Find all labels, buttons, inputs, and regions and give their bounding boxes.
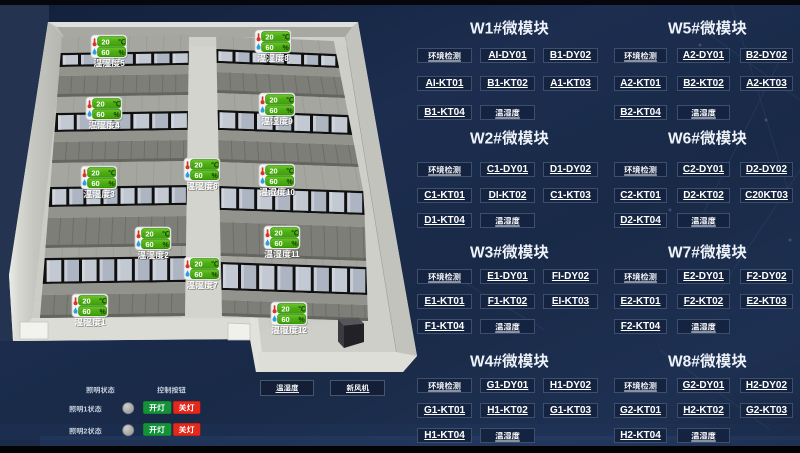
- svg-text:W7#: W7#: [668, 244, 700, 261]
- svg-text:%: %: [286, 108, 293, 115]
- svg-text:20: 20: [194, 160, 202, 169]
- svg-text:20: 20: [91, 168, 99, 177]
- svg-text:20: 20: [101, 37, 109, 46]
- svg-text:W6#: W6#: [668, 131, 700, 148]
- svg-text:1: 1: [83, 404, 87, 413]
- svg-text:3: 3: [110, 190, 115, 199]
- svg-text:6: 6: [213, 182, 218, 191]
- svg-text:%: %: [286, 179, 293, 186]
- svg-text:%: %: [282, 45, 289, 52]
- svg-text:20: 20: [269, 95, 277, 104]
- svg-text:12: 12: [298, 326, 307, 335]
- svg-text:60: 60: [96, 110, 104, 119]
- svg-text:11: 11: [291, 250, 300, 259]
- svg-text:W3#: W3#: [470, 244, 502, 261]
- svg-text:60: 60: [82, 307, 90, 316]
- svg-text:60: 60: [269, 106, 277, 115]
- svg-text:%: %: [118, 50, 125, 57]
- svg-text:60: 60: [281, 315, 289, 324]
- svg-text:%: %: [211, 173, 218, 180]
- svg-text:20: 20: [269, 166, 277, 175]
- svg-text:60: 60: [265, 43, 273, 52]
- svg-text:20: 20: [194, 259, 202, 268]
- svg-text:20: 20: [96, 99, 104, 108]
- svg-text:7: 7: [213, 281, 218, 290]
- svg-text:8: 8: [284, 54, 289, 63]
- svg-text:%: %: [99, 309, 106, 316]
- svg-text:60: 60: [274, 239, 282, 248]
- svg-text:1: 1: [101, 318, 106, 327]
- svg-text:W4#: W4#: [470, 353, 502, 370]
- svg-text:20: 20: [274, 228, 282, 237]
- svg-text:9: 9: [288, 117, 293, 126]
- svg-text:%: %: [113, 112, 120, 119]
- svg-text:60: 60: [194, 171, 202, 180]
- svg-text:2: 2: [164, 251, 169, 260]
- svg-text:20: 20: [82, 296, 90, 305]
- svg-text:4: 4: [115, 121, 120, 130]
- svg-text:%: %: [298, 317, 305, 324]
- svg-text:2: 2: [83, 426, 87, 435]
- svg-text:%: %: [211, 272, 218, 279]
- svg-text:20: 20: [145, 229, 153, 238]
- svg-text:60: 60: [101, 48, 109, 57]
- svg-text:%: %: [291, 241, 298, 248]
- svg-text:%: %: [162, 242, 169, 249]
- svg-text:60: 60: [194, 270, 202, 279]
- svg-text:W5#: W5#: [668, 21, 700, 38]
- svg-text:60: 60: [145, 240, 153, 249]
- svg-text:60: 60: [91, 179, 99, 188]
- svg-text:W2#: W2#: [470, 131, 502, 148]
- svg-text:%: %: [108, 181, 115, 188]
- svg-text:W8#: W8#: [668, 353, 700, 370]
- svg-text:20: 20: [281, 304, 289, 313]
- svg-text:60: 60: [269, 177, 277, 186]
- svg-text:20: 20: [265, 32, 273, 41]
- svg-text:W1#: W1#: [470, 21, 502, 38]
- svg-text:10: 10: [286, 188, 295, 197]
- svg-text:5: 5: [120, 59, 125, 68]
